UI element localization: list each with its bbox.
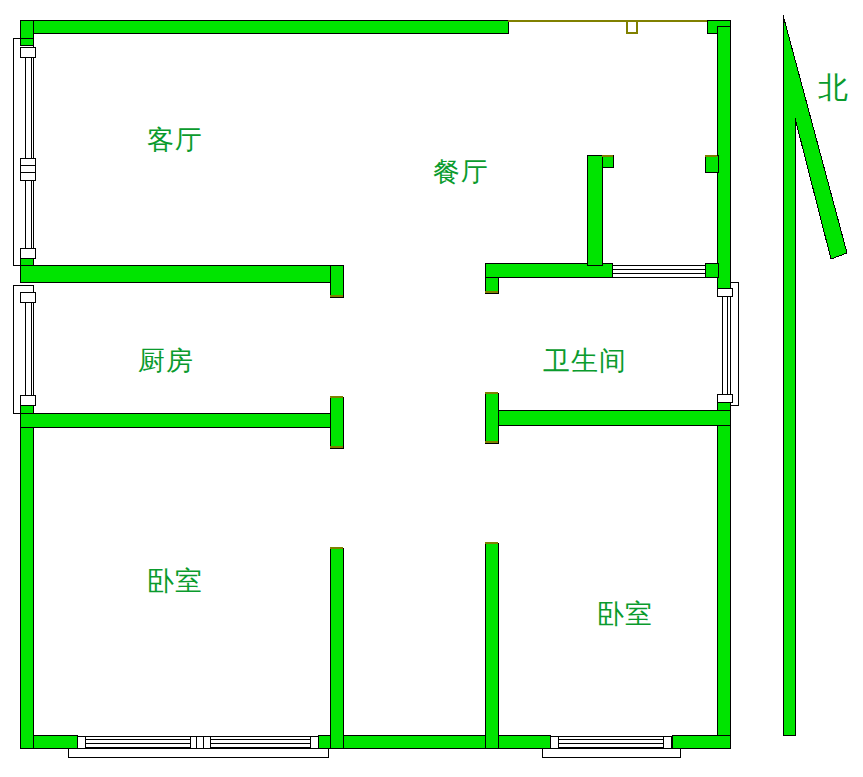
- floor-plan-drawing: [0, 0, 863, 777]
- entry-door-jamb: [627, 21, 637, 33]
- north-label: 北: [818, 71, 849, 104]
- jamb-mark: [705, 155, 717, 157]
- kitchen-window: [13, 285, 35, 413]
- jamb-mark: [330, 396, 343, 398]
- wall-right-lower: [717, 402, 730, 748]
- window-mullion: [190, 736, 210, 748]
- wall-right-stub: [705, 155, 718, 172]
- wall-kitchen-bottom: [20, 413, 330, 427]
- north-arrow: [783, 15, 847, 735]
- window-cap: [663, 736, 671, 748]
- window-cap: [717, 288, 732, 296]
- room-label-bathroom: 卫生间: [543, 346, 627, 376]
- wall-right-alcove-junction: [705, 263, 718, 277]
- wall-top-left-corner: [20, 20, 33, 45]
- window-cap: [20, 292, 35, 302]
- wall-bedroom-left: [330, 548, 343, 748]
- window-glass: [558, 736, 663, 747]
- alcove-window: [612, 265, 705, 277]
- bedroom-left-window: [68, 736, 328, 757]
- window-cap: [20, 47, 35, 57]
- wall-divider-end-cap: [330, 265, 343, 297]
- wall-alcove-bar: [587, 155, 602, 265]
- wall-bathroom-bottom: [498, 410, 730, 425]
- wall-left-lower: [20, 405, 33, 748]
- window-glass: [612, 265, 705, 277]
- jamb-mark: [330, 446, 343, 448]
- walls: [20, 20, 730, 748]
- window-glass: [722, 296, 727, 394]
- window-sill: [68, 748, 328, 757]
- window-cap: [310, 736, 318, 748]
- wall-bottom-right: [672, 735, 730, 748]
- jamb-mark: [485, 441, 498, 443]
- room-label-kitchen: 厨房: [138, 346, 194, 376]
- jamb-mark: [330, 295, 343, 297]
- wall-bedroom-right: [485, 543, 498, 748]
- bathroom-window: [717, 282, 738, 405]
- jamb-mark: [602, 155, 613, 157]
- bedroom-right-window: [542, 736, 680, 757]
- entry-opening: [508, 20, 707, 33]
- window-cap: [77, 736, 85, 748]
- wall-kitchen-tee: [330, 397, 343, 448]
- jamb-mark: [485, 542, 498, 544]
- wall-bottom-middle: [318, 735, 550, 748]
- window-mullion: [20, 158, 35, 180]
- window-cap: [550, 736, 558, 748]
- room-label-living-room: 客厅: [147, 125, 203, 155]
- room-label-bedroom-right: 卧室: [597, 599, 653, 629]
- wall-right-upper: [717, 26, 730, 288]
- window-glass: [25, 55, 31, 251]
- window-sill: [542, 748, 680, 757]
- jamb-mark: [485, 291, 498, 293]
- window-cap: [20, 395, 35, 405]
- room-label-dining-room: 餐厅: [433, 157, 489, 187]
- window-cap: [20, 248, 35, 258]
- wall-top: [20, 20, 508, 33]
- entry-opening-line: [508, 20, 707, 22]
- jamb-mark: [330, 547, 343, 549]
- window-cap: [717, 394, 732, 402]
- floor-plan: 客厅 餐厅 厨房 卫生间 卧室 卧室 北: [0, 0, 863, 777]
- room-label-bedroom-left: 卧室: [147, 566, 203, 596]
- living-room-window: [13, 38, 35, 265]
- window-bay-frame: [730, 282, 738, 405]
- wall-living-kitchen-divider: [20, 265, 343, 282]
- jamb-mark: [485, 392, 498, 394]
- window-glass: [25, 300, 31, 397]
- door-jamb-marks: [330, 155, 717, 549]
- wall-bathroom-tee: [485, 393, 498, 443]
